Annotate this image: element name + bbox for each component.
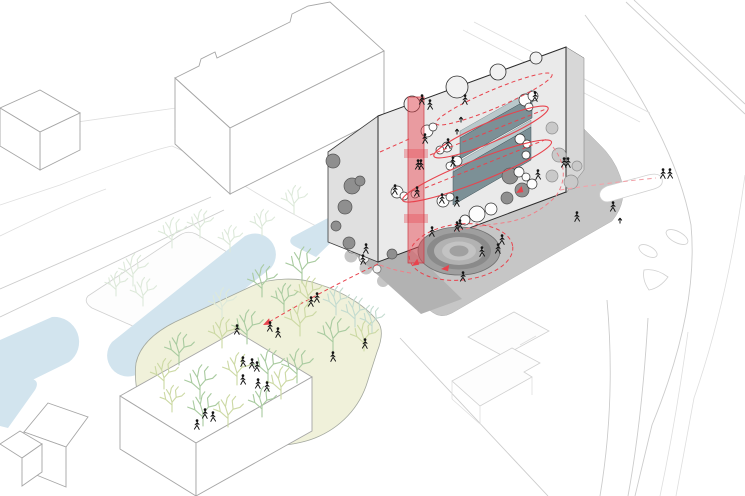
cloud-opening bbox=[527, 179, 537, 189]
amphitheater-ring bbox=[450, 246, 469, 257]
cloud-shadow bbox=[338, 200, 352, 214]
cloud-opening bbox=[469, 206, 485, 222]
architectural-diagram-canvas bbox=[0, 0, 745, 496]
cloud-shadow bbox=[501, 192, 513, 204]
cloud-shadow bbox=[326, 154, 340, 168]
cloud-shadow bbox=[343, 237, 355, 249]
cloud-exterior bbox=[546, 122, 558, 134]
cloud-shadow bbox=[331, 221, 341, 231]
scallop-bite bbox=[490, 64, 506, 80]
cloud-opening bbox=[485, 203, 497, 215]
cloud-opening bbox=[446, 193, 454, 201]
scallop-bite bbox=[530, 52, 542, 64]
cloud-opening bbox=[525, 103, 533, 111]
cloud-exterior bbox=[564, 175, 578, 189]
cloud-shadow bbox=[355, 176, 365, 186]
east-facade bbox=[566, 47, 584, 193]
apron-bite bbox=[373, 265, 381, 273]
cloud-exterior bbox=[546, 170, 558, 182]
cloud-shadow bbox=[387, 249, 397, 259]
shaft-core bbox=[408, 97, 424, 263]
cloud-opening bbox=[522, 151, 530, 159]
cloud-exterior bbox=[572, 161, 582, 171]
site-axonometric-diagram bbox=[0, 0, 745, 496]
